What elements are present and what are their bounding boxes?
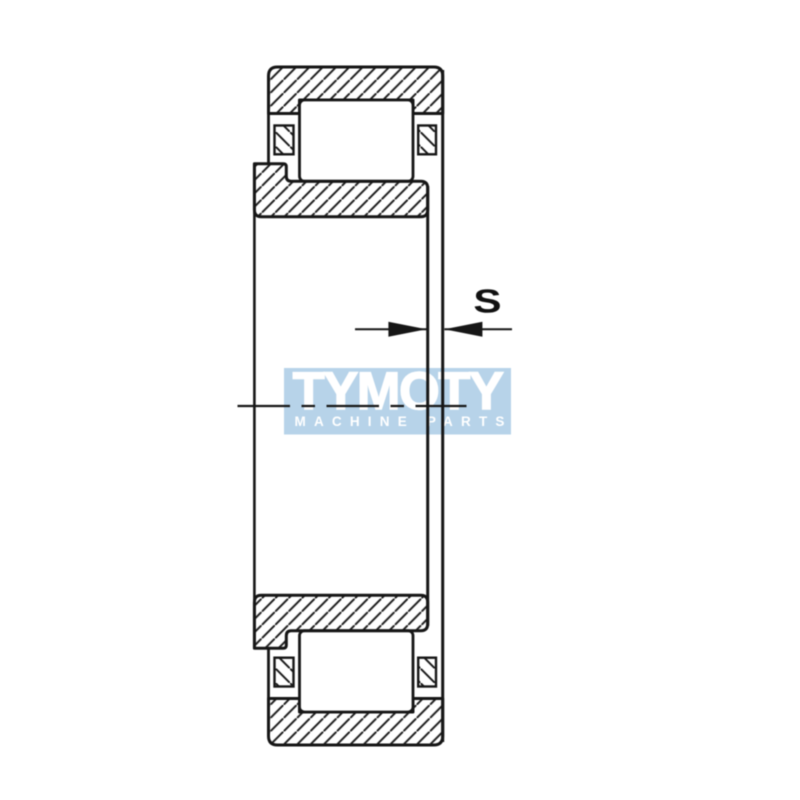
svg-text:TYMOTY: TYMOTY — [293, 362, 504, 421]
svg-text:MACHINE PARTS: MACHINE PARTS — [295, 414, 513, 429]
svg-text:S: S — [473, 284, 501, 321]
